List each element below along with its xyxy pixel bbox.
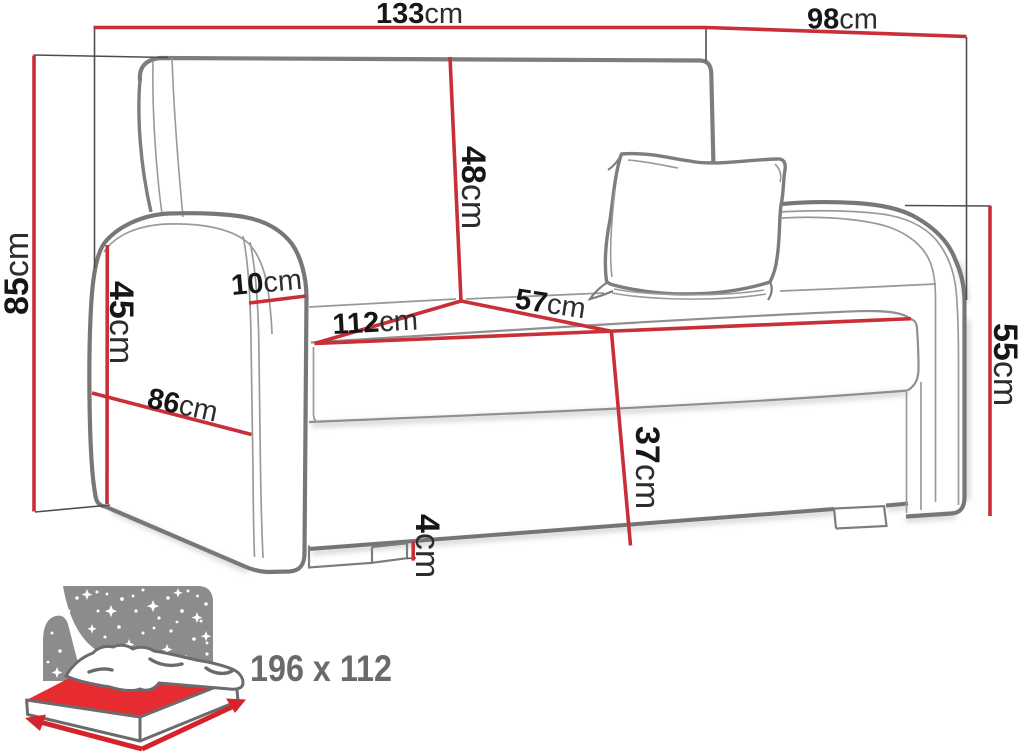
svg-text:196 x 112: 196 x 112 <box>250 648 392 689</box>
svg-text:37cm: 37cm <box>628 426 666 509</box>
svg-text:112cm: 112cm <box>332 305 419 341</box>
svg-text:48cm: 48cm <box>454 146 492 229</box>
svg-text:133cm: 133cm <box>376 0 463 30</box>
svg-text:85cm: 85cm <box>0 232 36 315</box>
svg-text:45cm: 45cm <box>102 281 140 364</box>
svg-text:57cm: 57cm <box>513 283 588 325</box>
svg-text:55cm: 55cm <box>986 323 1020 406</box>
svg-text:98cm: 98cm <box>807 4 878 36</box>
svg-text:10cm: 10cm <box>230 264 303 302</box>
svg-text:4cm: 4cm <box>408 514 446 578</box>
svg-text:86cm: 86cm <box>145 383 221 429</box>
